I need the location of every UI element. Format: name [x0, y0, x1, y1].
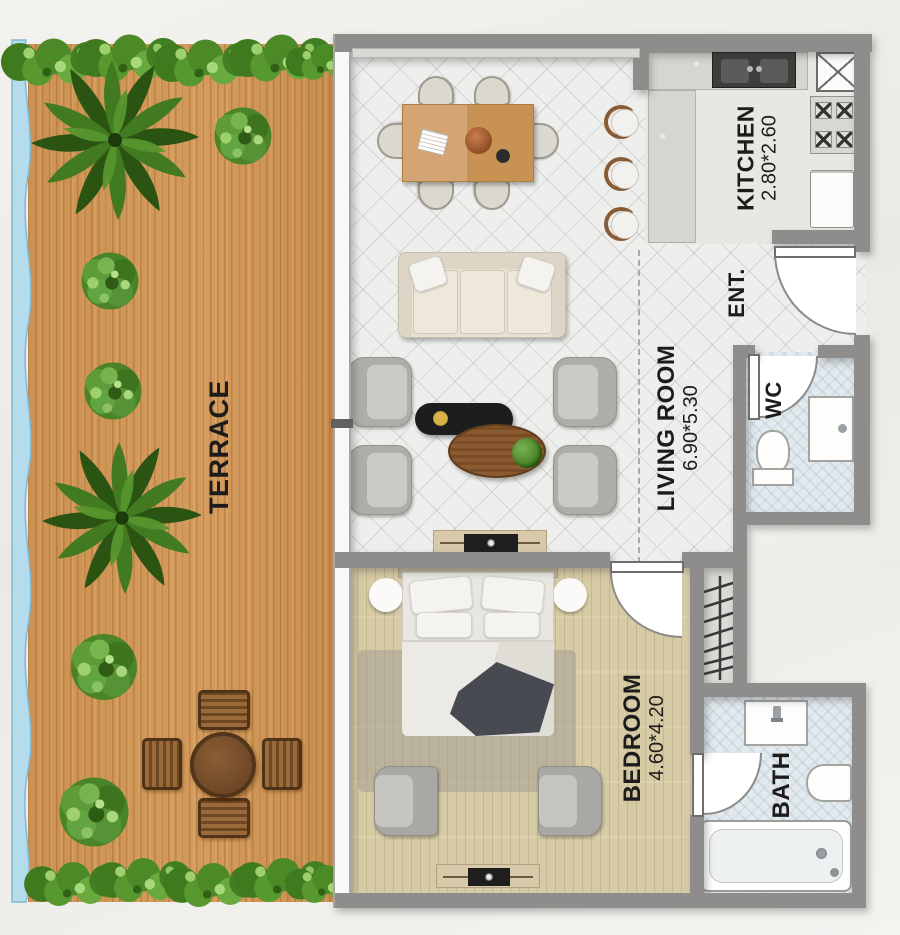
bed-pillow [484, 612, 540, 638]
serving-bowl [465, 127, 492, 154]
bathtub-drain-icon [816, 848, 827, 859]
zone-divider-dashed-line [638, 250, 640, 563]
bath-vanity [744, 700, 808, 746]
side-table [448, 424, 546, 478]
living-room-label: LIVING ROOM 6.90*5.30 [654, 345, 702, 512]
armchair [348, 357, 412, 427]
water-edge [12, 40, 31, 902]
bush [71, 634, 137, 700]
hedge-top [1, 34, 364, 86]
bar-stool [604, 206, 644, 242]
bed [402, 566, 554, 736]
entrance-door [774, 246, 856, 258]
sink-bowl [760, 59, 788, 83]
dining-chair [418, 76, 454, 106]
tv-living [464, 534, 518, 552]
armchair [553, 445, 617, 515]
nightstand [553, 578, 587, 612]
tv-bedroom [468, 868, 510, 886]
bench-seat [538, 766, 602, 836]
outdoor-chair [198, 690, 250, 730]
bed-pillow [416, 612, 472, 638]
coffee-table-tray [433, 411, 448, 426]
faucet-icon [756, 66, 762, 72]
wardrobe-hangers-icon [700, 572, 740, 684]
wc-door [748, 354, 760, 420]
palm-tree [31, 60, 199, 220]
burner-icon [815, 131, 832, 148]
palm-tree [42, 442, 202, 594]
bush [60, 778, 129, 847]
bathtub [700, 820, 852, 892]
bedroom-door [610, 561, 684, 573]
bench-seat [374, 766, 438, 836]
hedge-bottom [24, 858, 367, 907]
outdoor-chair [142, 738, 182, 790]
faucet-icon [747, 66, 753, 72]
bar-stool [604, 104, 644, 140]
entrance-label: ENT. [725, 268, 749, 318]
bath-door [692, 753, 704, 817]
dining-chair [474, 76, 510, 106]
faucet-icon [838, 424, 847, 433]
sofa-cushion [460, 270, 505, 334]
floor-plan: TERRACE [0, 0, 900, 935]
bedroom-label: BEDROOM 4.60*4.20 [620, 674, 668, 803]
plant [512, 438, 542, 468]
tv-console-bedroom [436, 864, 540, 888]
bed-pillow [408, 575, 473, 615]
tv-console-living [433, 530, 547, 554]
burner-icon [836, 131, 853, 148]
armchair [553, 357, 617, 427]
kitchen-sink [712, 52, 796, 88]
terrace-label: TERRACE [205, 380, 235, 514]
table-decor [495, 147, 511, 165]
outdoor-chair [198, 798, 250, 838]
sofa [398, 252, 566, 338]
exterior-cutout [747, 525, 900, 568]
burner-icon [836, 102, 853, 119]
sink-bowl [721, 59, 749, 83]
bush [215, 108, 272, 165]
outdoor-table [190, 732, 256, 798]
stove [810, 96, 856, 154]
nightstand [369, 578, 403, 612]
kitchen-counter-peninsula [648, 90, 696, 243]
burner-icon [815, 102, 832, 119]
outdoor-chair [262, 738, 302, 790]
kitchen-label: KITCHEN 2.80*2.60 [733, 105, 780, 211]
bush [85, 363, 142, 420]
bath-label: BATH [769, 752, 795, 819]
wc-label: WC [762, 381, 786, 419]
bathtub-handle-icon [830, 868, 839, 877]
bar-stool [604, 156, 644, 192]
wc-vanity [808, 396, 854, 462]
napkin-stack [417, 128, 449, 156]
bush [82, 253, 139, 310]
dining-table [402, 104, 534, 182]
shaft-icon [816, 52, 860, 92]
faucet-icon [771, 718, 783, 722]
bath-toilet [806, 764, 852, 802]
armchair [348, 445, 412, 515]
wc-toilet-tank [752, 468, 794, 486]
fridge [810, 170, 854, 228]
bed-pillow [480, 575, 545, 615]
